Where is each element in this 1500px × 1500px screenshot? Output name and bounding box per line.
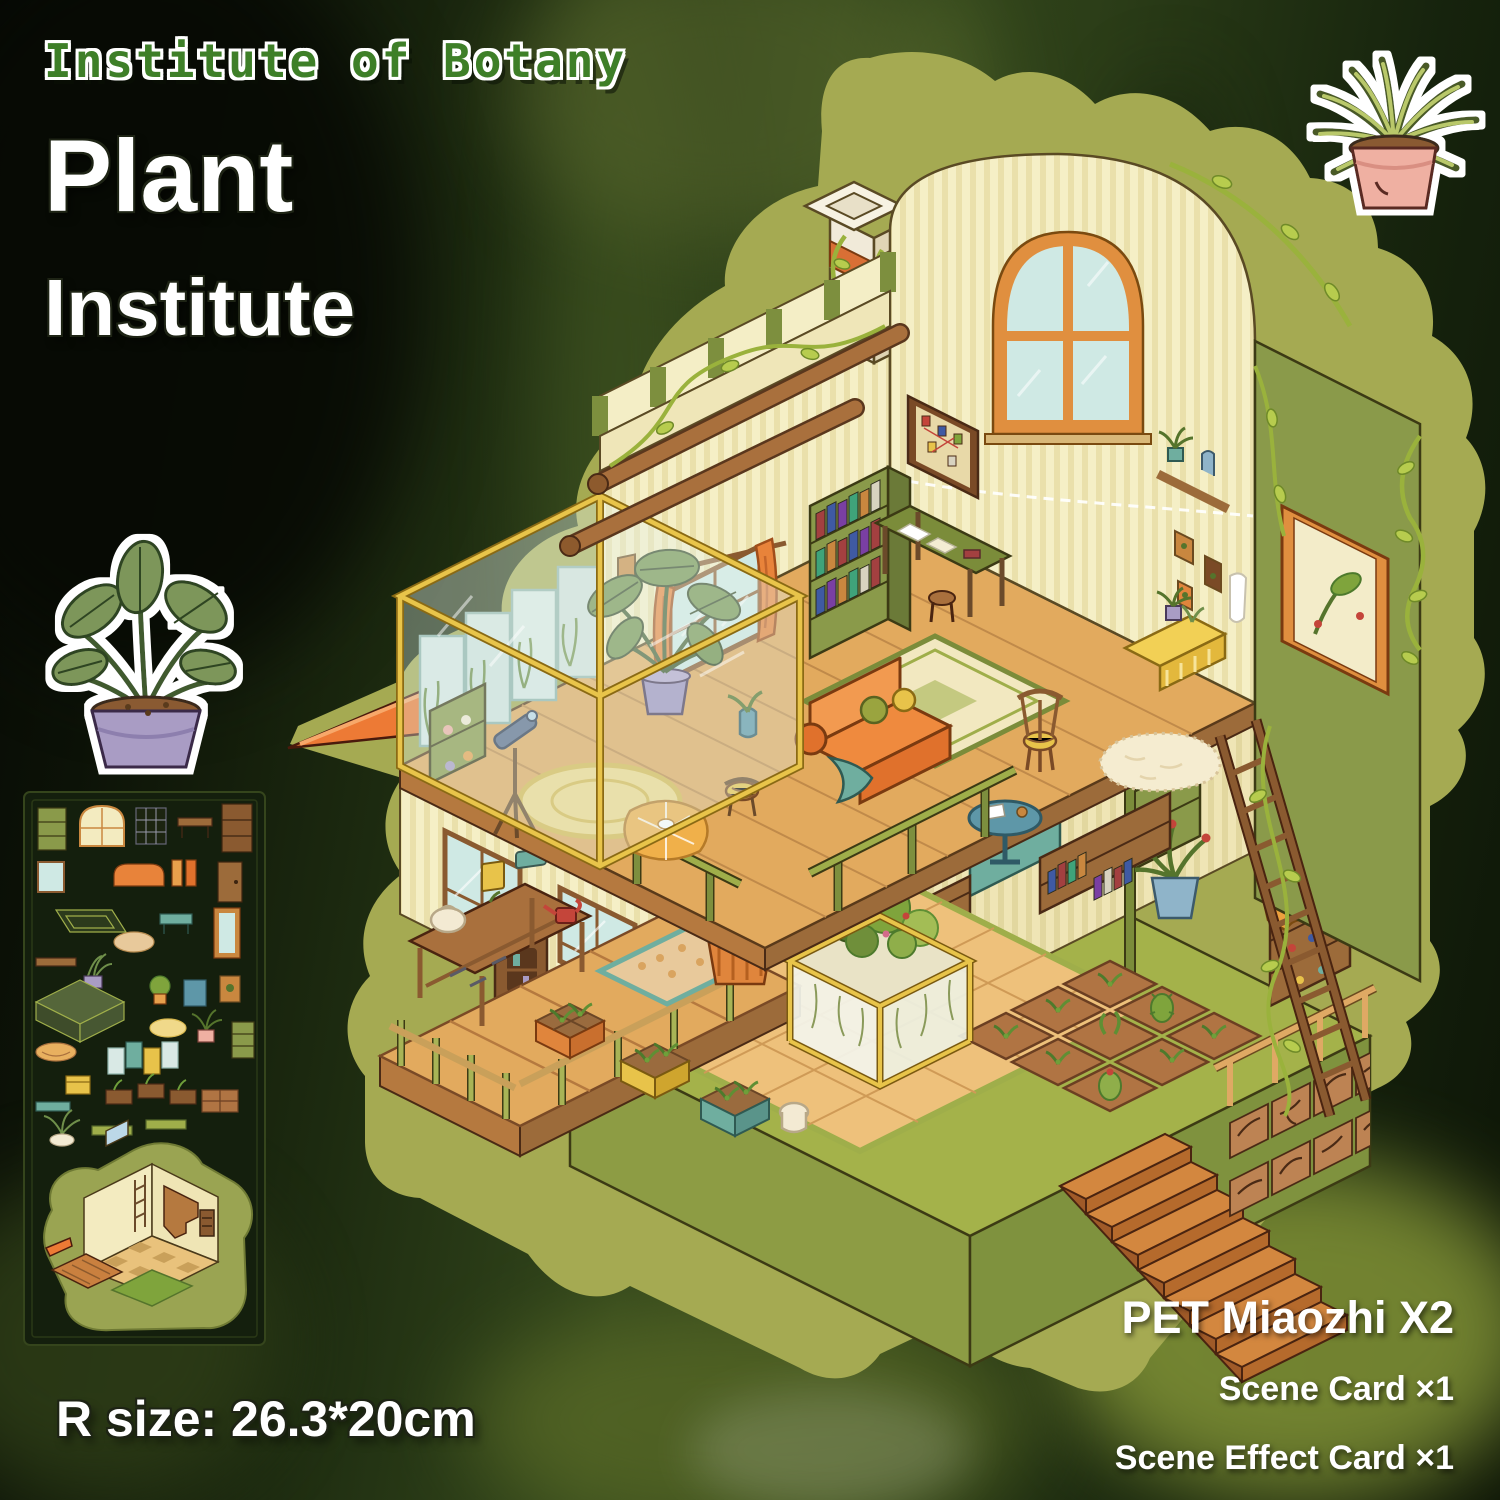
spider-plant-sticker [1290, 36, 1498, 234]
potted-monstera-sticker [40, 515, 252, 777]
arch-window [985, 232, 1151, 444]
package-contents: PET Miaozhi X2 Scene Card ×1 Scene Effec… [1115, 1292, 1454, 1478]
title-line2: Institute [44, 262, 355, 354]
contents-item-effect-card: Scene Effect Card ×1 [1115, 1439, 1454, 1478]
plant-institute-isometric-scene [270, 36, 1500, 1396]
furniture-sticker-sheet [22, 790, 267, 1347]
fluffy-rug [1100, 733, 1220, 790]
white-smudge [690, 1390, 970, 1500]
brand-label: Institute of Botany [44, 34, 627, 88]
contents-item-pet: PET Miaozhi X2 [1115, 1292, 1454, 1344]
right-side-wall [1255, 341, 1428, 981]
title-line1: Plant [44, 118, 293, 235]
size-label: R size: 26.3*20cm [56, 1390, 476, 1448]
contents-item-scene-card: Scene Card ×1 [1115, 1370, 1454, 1409]
poster-canvas: Institute of Botany Plant Institute R si… [0, 0, 1500, 1500]
